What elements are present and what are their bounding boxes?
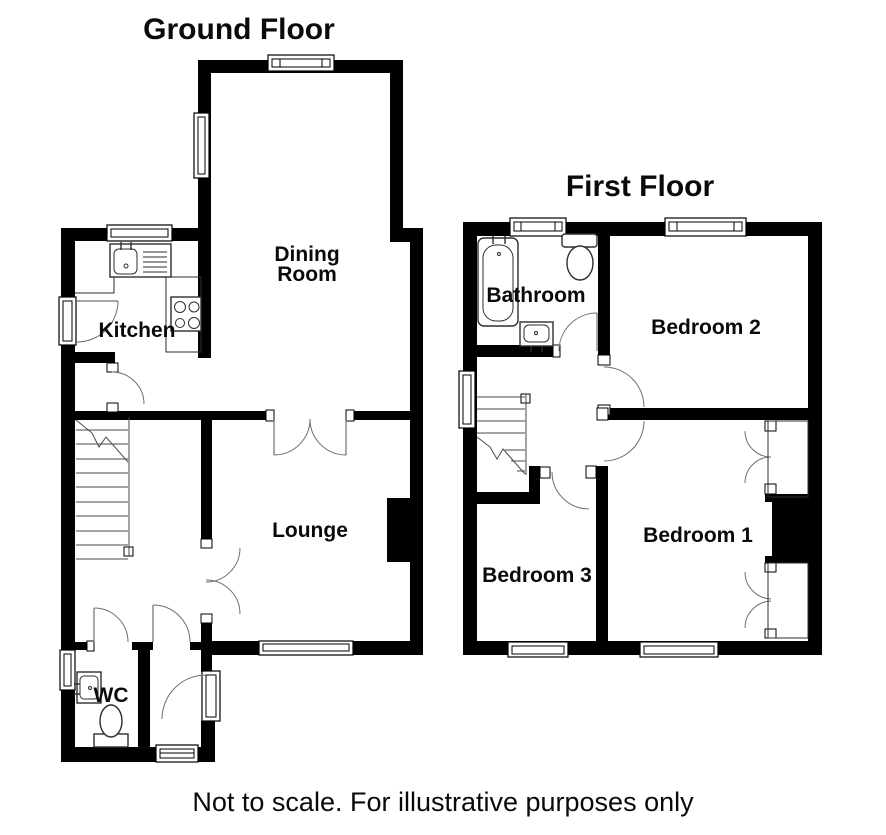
bathroom-toilet <box>562 234 597 280</box>
hall-lounge-double-doors <box>206 548 240 614</box>
ground-floor-staircase <box>76 417 129 559</box>
front-door <box>202 671 220 721</box>
bedroom1-wardrobe-doors-lower <box>745 572 771 628</box>
wc-toilet <box>94 705 128 747</box>
bathroom-door-arc <box>559 313 597 351</box>
disclaimer-caption: Not to scale. For illustrative purposes … <box>192 787 694 817</box>
room-label-bedroom3: Bedroom 3 <box>482 564 592 587</box>
ground-floor-title: Ground Floor <box>143 13 335 46</box>
first-floor-plan: First Floor Bathroom Bedroom 2 Bedroom 1… <box>459 170 822 657</box>
room-label-bedroom2: Bedroom 2 <box>651 316 761 339</box>
kitchen-sink-unit <box>110 242 171 277</box>
dining-top-window <box>268 55 334 71</box>
bedroom3-window <box>508 642 568 657</box>
dining-lounge-double-doors <box>274 419 346 455</box>
bedroom2-window <box>665 218 746 236</box>
first-floor-title: First Floor <box>566 170 715 203</box>
first-floor-jambs <box>521 345 776 638</box>
kitchen-side-door <box>59 297 76 345</box>
first-floor-staircase <box>477 394 526 475</box>
kitchen-window <box>107 225 172 241</box>
ground-floor-plan: Ground Floor Dining Room Kitchen Lounge … <box>59 13 423 762</box>
front-door-arc <box>162 675 206 719</box>
ground-floor-jambs <box>87 363 354 651</box>
room-label-dining-line2: Room <box>277 263 337 286</box>
bathroom-window <box>510 218 566 236</box>
room-label-lounge: Lounge <box>272 519 348 542</box>
floorplan-page: Ground Floor Dining Room Kitchen Lounge … <box>0 0 886 835</box>
bedroom1-window <box>640 642 718 657</box>
bedroom2-door-arc <box>604 367 644 407</box>
wc-door-arc <box>94 608 128 642</box>
dining-left-window <box>194 113 209 178</box>
room-label-bathroom: Bathroom <box>486 284 585 307</box>
cupboard-door-arc <box>112 372 144 404</box>
room-label-bedroom1: Bedroom 1 <box>643 524 753 547</box>
bedroom1-wardrobe-doors-upper <box>745 431 771 483</box>
room-label-kitchen: Kitchen <box>98 319 175 342</box>
landing-window <box>459 371 475 428</box>
porch-window <box>156 745 198 762</box>
porch-door-arc <box>153 605 190 642</box>
floorplan-drawing: Ground Floor Dining Room Kitchen Lounge … <box>0 0 886 835</box>
bedroom1-door-arc <box>604 421 644 461</box>
room-label-wc: WC <box>94 684 129 707</box>
lounge-window <box>259 641 353 655</box>
bedroom3-door-arc <box>552 472 589 509</box>
bathtub <box>478 236 518 326</box>
wc-window <box>60 650 75 690</box>
